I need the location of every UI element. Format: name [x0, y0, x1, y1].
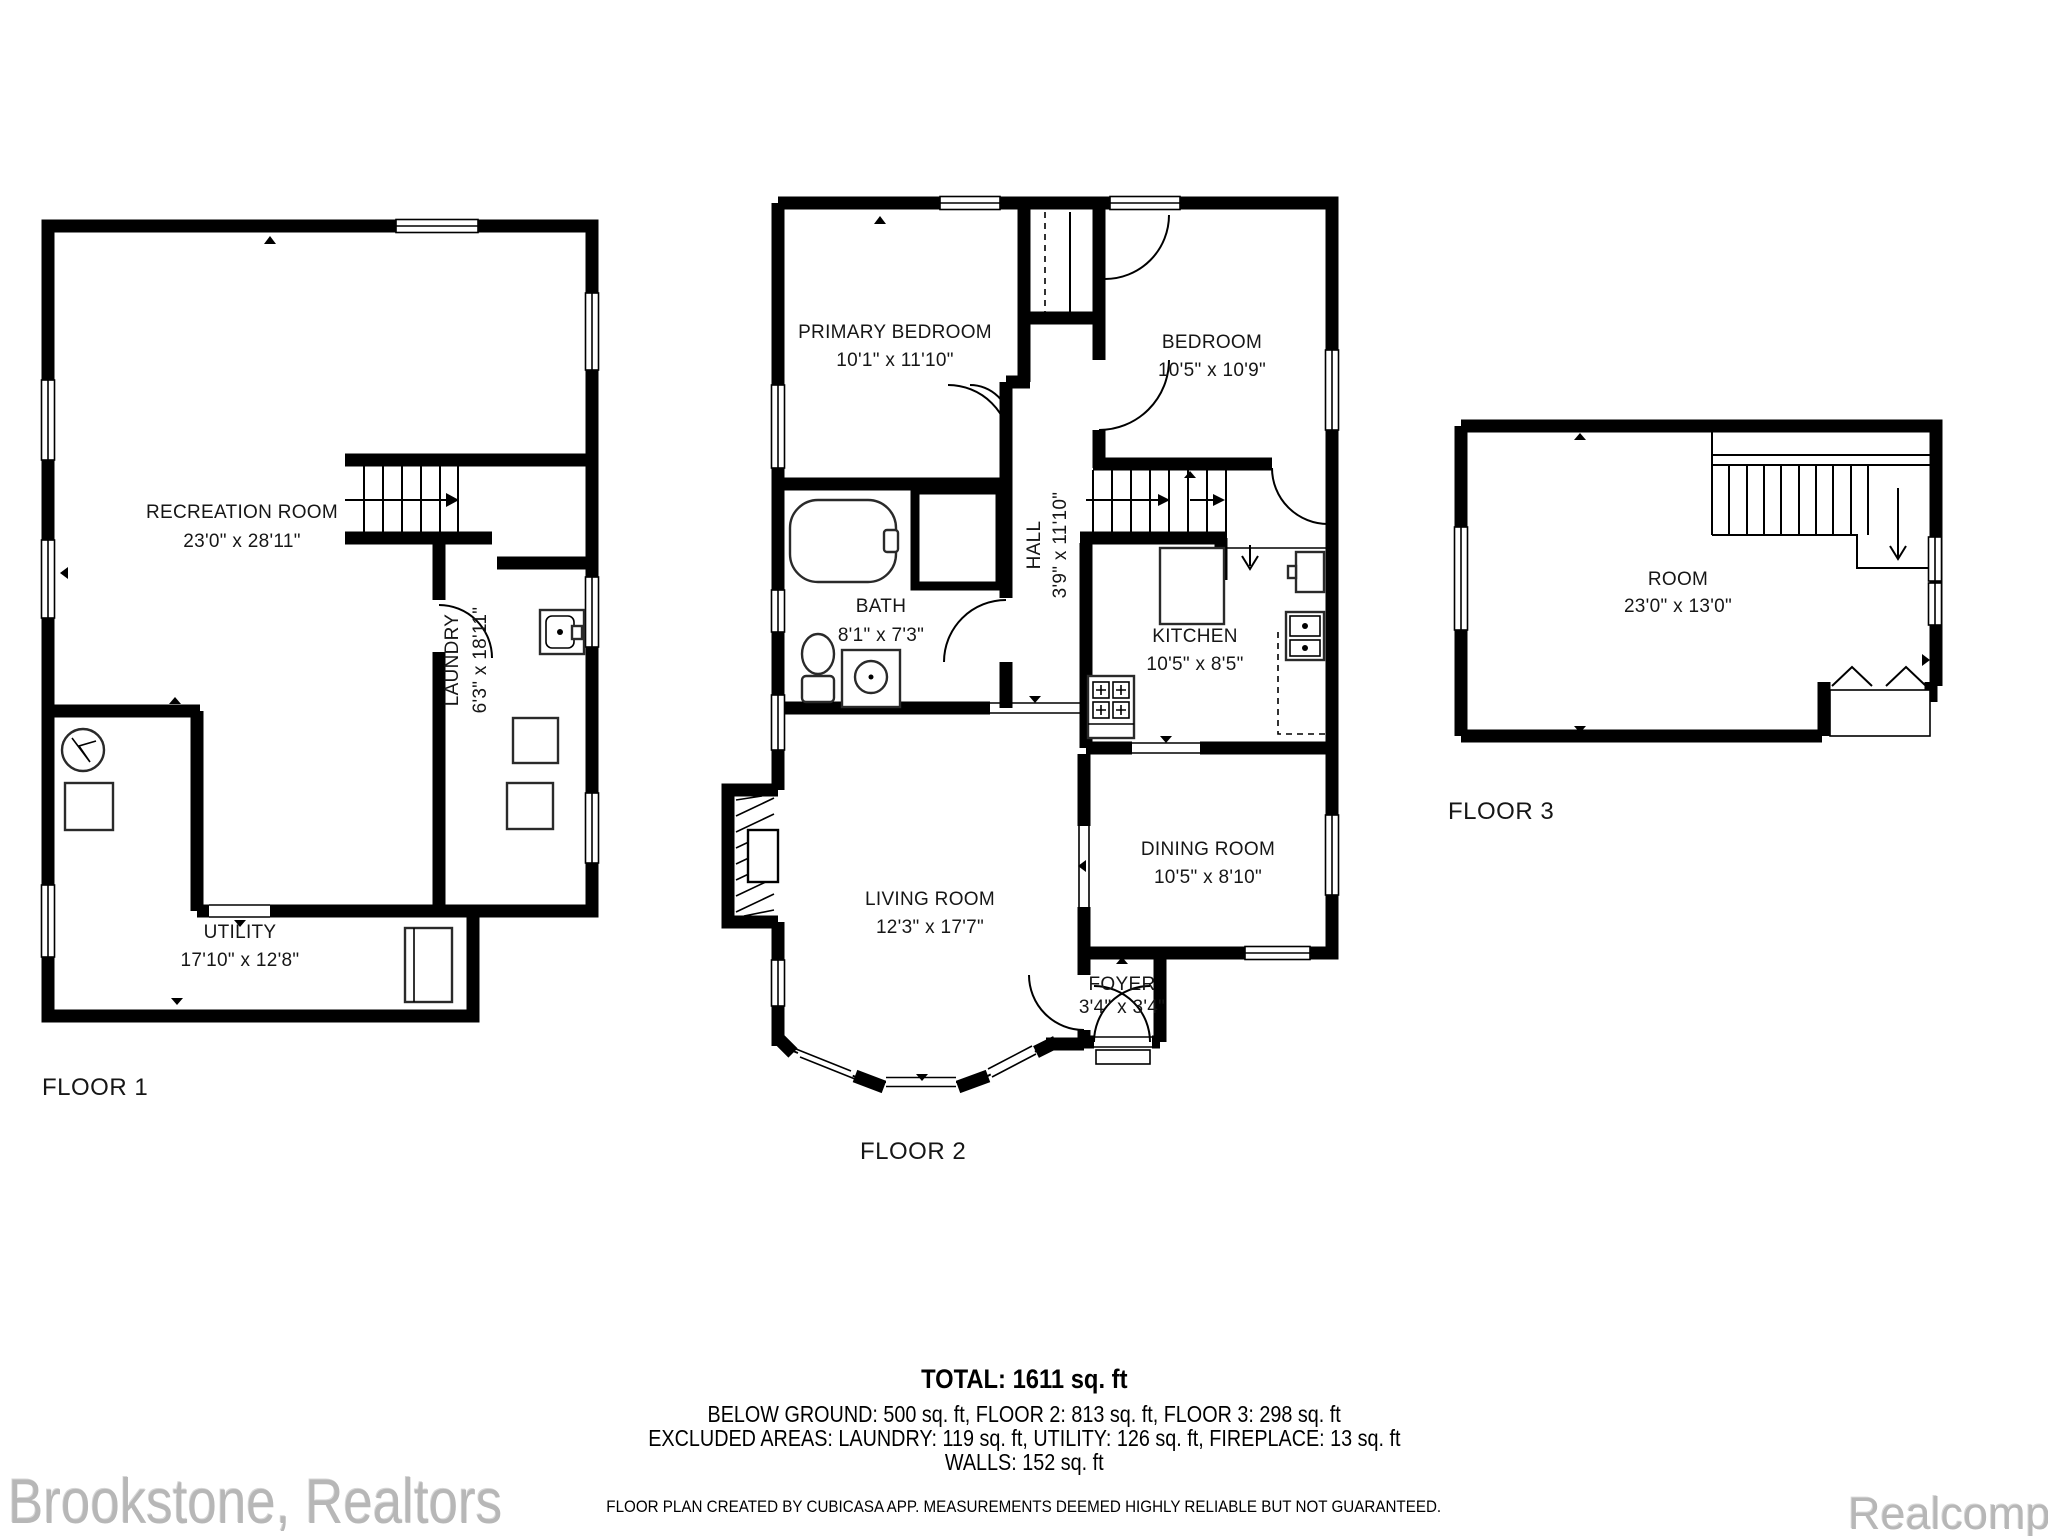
room-dims-kitchen: 10'5" x 8'5": [1146, 654, 1243, 675]
appliance-box-icon: [65, 783, 113, 830]
room-label-kitchen: KITCHEN: [1152, 626, 1238, 647]
floor-plan-page: RECREATION ROOM 23'0" x 28'11" UTILITY 1…: [0, 0, 2048, 1536]
chimney-structure: [1830, 667, 1930, 736]
room-dims-utility: 17'10" x 12'8": [181, 950, 300, 971]
laundry-appliance-1-icon: [513, 718, 558, 763]
floor1-interior-walls: [48, 460, 592, 911]
room-dims-laundry: 6'3" x 18'11": [470, 607, 491, 714]
room-label-primary-bedroom: PRIMARY BEDROOM: [798, 322, 992, 343]
floor1-outer-walls: [48, 226, 592, 1016]
water-heater-icon: [405, 928, 452, 1002]
room-label-dining: DINING ROOM: [1141, 839, 1275, 860]
room-dims-bath: 8'1" x 7'3": [838, 625, 924, 646]
washer-icon: [62, 729, 104, 771]
room-label-living: LIVING ROOM: [865, 889, 995, 910]
room-label-laundry: LAUNDRY: [442, 614, 463, 707]
floor3-stairs: [1712, 432, 1930, 568]
summary-floors-line: BELOW GROUND: 500 sq. ft, FLOOR 2: 813 s…: [0, 1402, 2048, 1426]
watermark-realcomp: Realcomp: [1848, 1488, 2048, 1536]
kitchen-sink-icon: [1286, 612, 1324, 660]
room-label-bath: BATH: [856, 596, 906, 617]
kitchen-island: [1160, 548, 1224, 624]
room-label-bedroom: BEDROOM: [1162, 332, 1262, 353]
room-dims-room: 23'0" x 13'0": [1624, 596, 1732, 617]
toilet-icon: [802, 634, 834, 702]
stove-icon: [1088, 676, 1134, 738]
floor-plan-drawing: RECREATION ROOM 23'0" x 28'11" UTILITY 1…: [0, 0, 2048, 1536]
front-door-stoop: [1096, 1050, 1150, 1064]
floor1-windows: [42, 220, 599, 958]
room-dims-recreation: 23'0" x 28'11": [183, 531, 301, 552]
room-dims-foyer: 3'4" x 3'4": [1079, 997, 1165, 1018]
room-label-hall: HALL: [1024, 521, 1045, 570]
floor2-caption: FLOOR 2: [860, 1138, 966, 1166]
room-label-foyer: FOYER: [1089, 974, 1156, 995]
floor1-plan: RECREATION ROOM 23'0" x 28'11" UTILITY 1…: [42, 220, 599, 1017]
kitchen-cabinet-icon: [1288, 552, 1324, 592]
laundry-appliance-2-icon: [507, 783, 553, 829]
utility-door-threshold: [209, 905, 270, 917]
room-dims-bedroom: 10'5" x 10'9": [1158, 360, 1266, 381]
bathtub-icon: [790, 500, 898, 582]
floor2-door-arcs: [944, 215, 1328, 1042]
fireplace-icon: [736, 796, 778, 916]
room-label-room: ROOM: [1648, 569, 1708, 590]
summary-total: TOTAL: 1611 sq. ft: [0, 1364, 2048, 1395]
summary-excluded-line: EXCLUDED AREAS: LAUNDRY: 119 sq. ft, UTI…: [0, 1426, 2048, 1450]
bay-window: [778, 1038, 1056, 1087]
room-dims-dining: 10'5" x 8'10": [1154, 867, 1262, 888]
floor3-caption: FLOOR 3: [1448, 798, 1554, 826]
room-label-recreation: RECREATION ROOM: [146, 502, 338, 523]
shower-enclosure: [915, 490, 1000, 586]
room-dims-hall: 3'9" x 11'10": [1050, 492, 1071, 599]
floor1-stairs: [345, 466, 459, 533]
wall-ticks: [60, 216, 1930, 1081]
floor1-caption: FLOOR 1: [42, 1074, 148, 1102]
room-dims-living: 12'3" x 17'7": [876, 917, 984, 938]
floor2-plan: PRIMARY BEDROOM 10'1" x 11'10" BEDROOM 1…: [728, 197, 1339, 1088]
watermark-brookstone: Brookstone, Realtors: [8, 1466, 502, 1536]
room-dims-primary-bedroom: 10'1" x 11'10": [836, 350, 954, 371]
laundry-sink-icon: [540, 610, 584, 654]
vanity-sink-icon: [842, 650, 900, 707]
floor3-plan: ROOM 23'0" x 13'0": [1455, 426, 1942, 736]
